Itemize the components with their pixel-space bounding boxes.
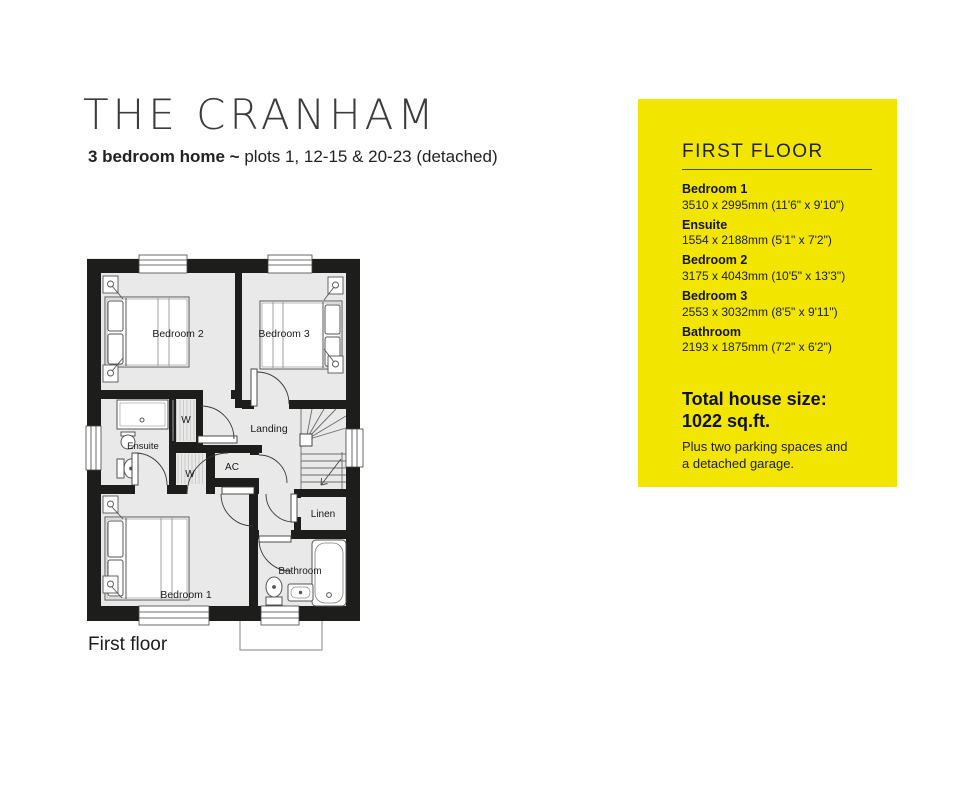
spec-room-dims: 3510 x 2995mm (11'6" x 9'10"): [682, 198, 872, 213]
subtitle-bold: 3 bedroom home ~: [88, 147, 240, 166]
spec-room-entry: Bedroom 2 3175 x 4043mm (10'5" x 13'3"): [682, 253, 872, 284]
spec-room-entry: Bedroom 3 2553 x 3032mm (8'5" x 9'11"): [682, 289, 872, 320]
page-subtitle: 3 bedroom home ~ plots 1, 12-15 & 20-23 …: [88, 147, 498, 167]
page-title: THE CRANHAM: [83, 90, 438, 139]
label-bedroom1: Bedroom 1: [160, 589, 212, 601]
total-house-size: Total house size: 1022 sq.ft.: [682, 389, 872, 432]
spec-room-dims: 1554 x 2188mm (5'1" x 7'2"): [682, 233, 872, 248]
label-airing-cupboard: AC: [225, 462, 239, 473]
spec-room-name: Bathroom: [682, 325, 872, 341]
label-bedroom2: Bedroom 2: [152, 328, 204, 340]
spec-room-entry: Bedroom 1 3510 x 2995mm (11'6" x 9'10"): [682, 182, 872, 213]
subtitle-rest: plots 1, 12-15 & 20-23 (detached): [240, 147, 498, 166]
spec-room-name: Bedroom 3: [682, 289, 872, 305]
spec-room-name: Ensuite: [682, 218, 872, 234]
total-house-size-label: Total house size:: [682, 389, 872, 411]
brochure-page: THE CRANHAM 3 bedroom home ~ plots 1, 12…: [0, 0, 980, 799]
total-house-size-value: 1022 sq.ft.: [682, 411, 872, 433]
label-bedroom3: Bedroom 3: [258, 328, 310, 340]
label-ensuite: Ensuite: [127, 441, 159, 452]
parking-note: Plus two parking spaces and a detached g…: [682, 439, 857, 473]
floorplan-svg: Bedroom 2 Bedroom 3 Ensuite W W AC Landi…: [85, 253, 380, 653]
spec-room-dims: 2553 x 3032mm (8'5" x 9'11"): [682, 305, 872, 320]
spec-room-name: Bedroom 1: [682, 182, 872, 198]
spec-panel-heading: FIRST FLOOR: [682, 141, 872, 163]
spec-panel-rule: [682, 169, 872, 170]
spec-room-dims: 3175 x 4043mm (10'5" x 13'3"): [682, 269, 872, 284]
spec-room-entry: Ensuite 1554 x 2188mm (5'1" x 7'2"): [682, 218, 872, 249]
label-wardrobe-top: W: [181, 415, 191, 426]
spec-room-dims: 2193 x 1875mm (7'2" x 6'2"): [682, 340, 872, 355]
label-landing: Landing: [250, 423, 288, 435]
label-bathroom: Bathroom: [278, 566, 321, 577]
floorplan-caption: First floor: [88, 634, 167, 656]
spec-room-name: Bedroom 2: [682, 253, 872, 269]
spec-panel: FIRST FLOOR Bedroom 1 3510 x 2995mm (11'…: [638, 99, 897, 487]
spec-room-entry: Bathroom 2193 x 1875mm (7'2" x 6'2"): [682, 325, 872, 356]
label-linen: Linen: [311, 509, 335, 520]
floorplan: Bedroom 2 Bedroom 3 Ensuite W W AC Landi…: [85, 253, 380, 653]
label-wardrobe-bottom: W: [185, 469, 195, 480]
